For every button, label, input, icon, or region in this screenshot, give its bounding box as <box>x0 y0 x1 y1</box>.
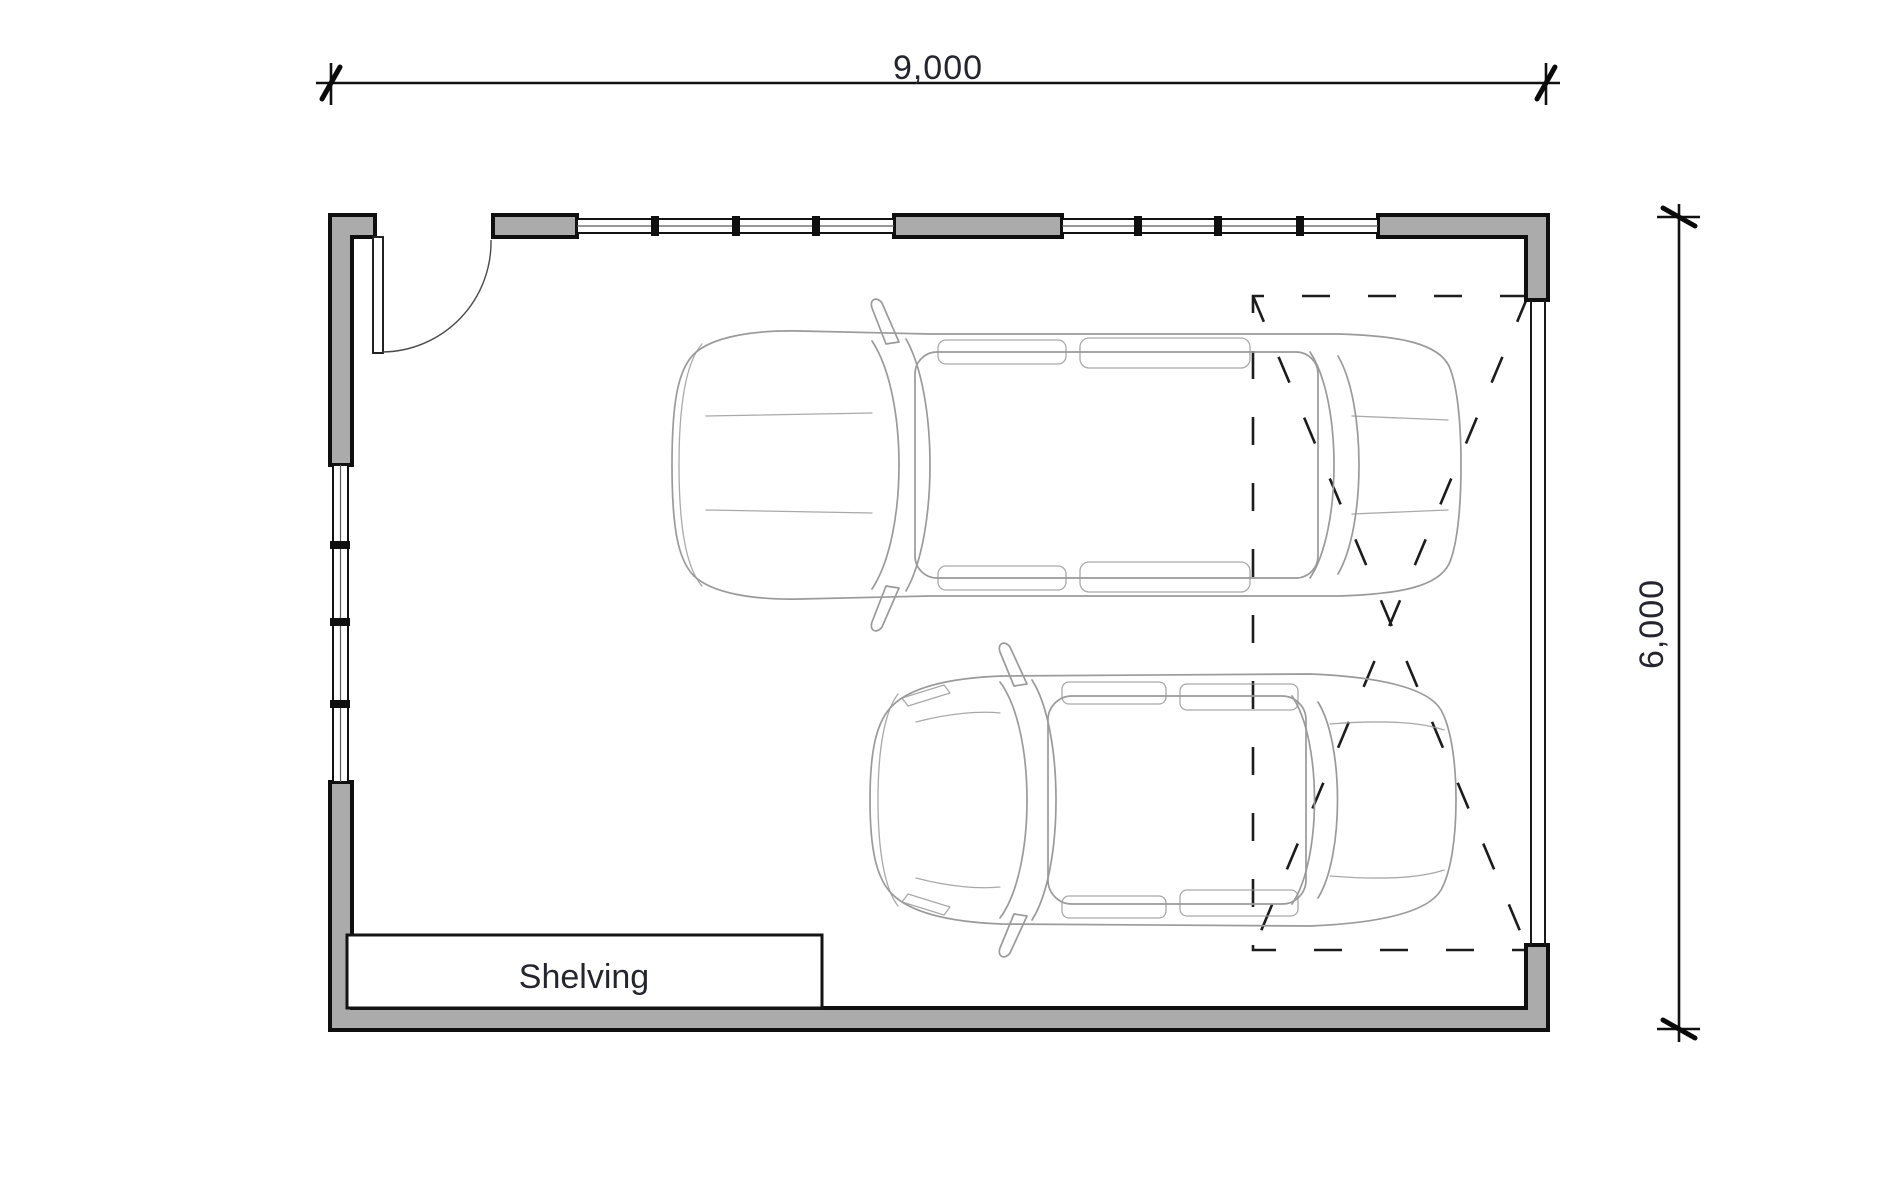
right-wall-garage-opening <box>1531 300 1545 945</box>
car-sedan-front-bumper-line <box>878 694 898 906</box>
car-sedan-roof <box>1048 696 1306 904</box>
floor-plan-canvas: Shelving 9,000 6,000 <box>0 0 1900 1187</box>
width-dimension: 9,000 <box>316 49 1560 105</box>
entry-door <box>373 237 491 353</box>
window-mullion <box>1134 216 1142 236</box>
car-sedan-window-rear-bottom <box>1180 890 1298 916</box>
car-sedan-window-front-bottom <box>1062 896 1166 918</box>
car-sedan-window-rear-top <box>1180 684 1298 710</box>
walls <box>330 215 1548 1030</box>
car-suv-body <box>672 331 1461 599</box>
car-sedan-window-front-top <box>1062 682 1166 704</box>
car-suv-front-bumper-line <box>679 344 702 586</box>
car-sedan-mirror-top <box>999 643 1027 686</box>
top-right-corner-wall <box>1378 215 1548 300</box>
height-dimension: 6,000 <box>1633 204 1700 1042</box>
car-suv-mirror-top <box>871 299 899 344</box>
window-mullion <box>330 618 350 626</box>
car-suv-windshield <box>872 339 930 591</box>
top-wall-pier <box>894 215 1062 237</box>
car-suv-roof <box>915 352 1318 578</box>
car-sedan-headlight-bottom <box>902 894 950 915</box>
height-dimension-label: 6,000 <box>1633 579 1671 669</box>
window-mullion <box>732 216 740 236</box>
car-sedan-rear-window <box>1292 696 1338 904</box>
car-suv-hood-line-lower <box>706 510 872 513</box>
garage-door-dashed-outline <box>1253 296 1528 950</box>
window-mullion <box>330 541 350 549</box>
car-sedan-mirror-bottom <box>999 914 1027 957</box>
car-sedan <box>870 643 1456 957</box>
top-left-corner-wall <box>330 215 375 465</box>
top-wall-segment <box>493 215 577 237</box>
shelving-label: Shelving <box>519 958 649 996</box>
car-suv-window-rear-bottom <box>1080 562 1250 592</box>
door-leaf <box>373 237 383 353</box>
car-sedan-hood-line-lower <box>916 878 1000 888</box>
window-mullion <box>1296 216 1304 236</box>
window-mullion <box>1214 216 1222 236</box>
width-dimension-label: 9,000 <box>893 49 983 87</box>
car-suv-mirror-bottom <box>871 586 899 631</box>
window-mullion <box>812 216 820 236</box>
car-suv <box>672 299 1461 631</box>
window-mullion <box>330 700 350 708</box>
car-sedan-headlight-top <box>902 685 950 706</box>
door-swing-arc <box>383 240 491 352</box>
car-suv-trunk-line-upper <box>1352 416 1448 420</box>
windows <box>330 216 1378 782</box>
car-sedan-body <box>870 674 1456 926</box>
shelving-unit: Shelving <box>347 935 822 1008</box>
car-suv-trunk-line-lower <box>1352 510 1448 514</box>
car-suv-hood-line-upper <box>706 413 872 416</box>
car-suv-window-rear-top <box>1080 338 1250 368</box>
car-sedan-hood-line-upper <box>916 712 1000 722</box>
window-mullion <box>651 216 659 236</box>
car-sedan-trunk-line-lower <box>1330 870 1444 878</box>
